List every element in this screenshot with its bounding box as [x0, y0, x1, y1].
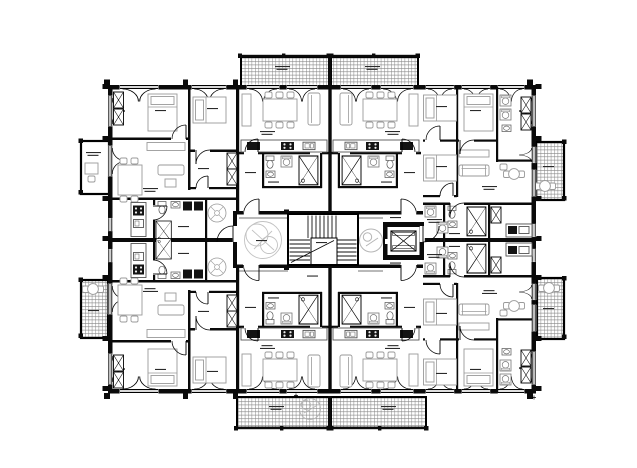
- balcony-bottom-right: [331, 397, 426, 428]
- balcony-top-left: [241, 57, 329, 86]
- room-label-mark: [88, 310, 99, 311]
- balcony-top-right: [331, 57, 418, 86]
- room-label-mark: [543, 166, 554, 167]
- room-label-mark: [543, 308, 554, 309]
- balcony-bottom-left: [237, 397, 329, 428]
- elevator: [383, 222, 424, 260]
- balcony-right-upper: [536, 142, 564, 200]
- floor-plan-page: [0, 0, 637, 468]
- stairwell: [288, 214, 358, 265]
- floor-plan-canvas: [0, 0, 637, 468]
